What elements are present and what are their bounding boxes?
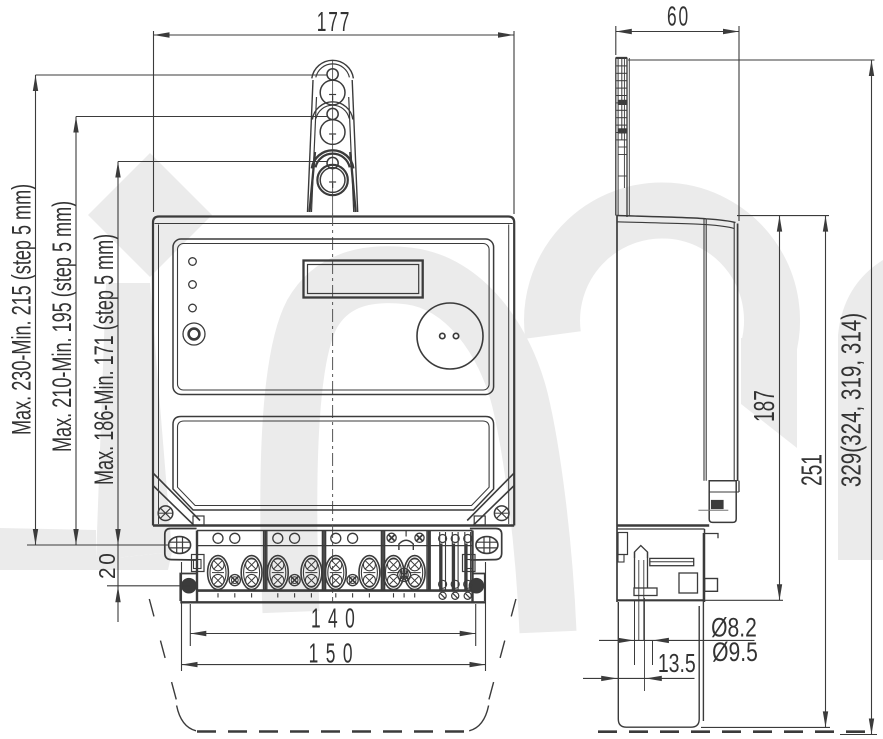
svg-text:20: 20 xyxy=(94,551,120,579)
svg-text:177: 177 xyxy=(317,6,352,37)
svg-text:150: 150 xyxy=(309,637,360,668)
svg-text:Max. 230-Min. 215 (step 5 mm): Max. 230-Min. 215 (step 5 mm) xyxy=(6,184,37,435)
svg-text:251: 251 xyxy=(797,454,829,486)
svg-text:140: 140 xyxy=(311,602,362,633)
svg-text:Max. 186-Min. 171 (step 5 mm): Max. 186-Min. 171 (step 5 mm) xyxy=(88,234,119,485)
svg-text:13.5: 13.5 xyxy=(658,648,696,677)
svg-text:187: 187 xyxy=(749,390,781,422)
svg-text:Ø9.5: Ø9.5 xyxy=(712,638,758,668)
svg-text:329(324, 319, 314): 329(324, 319, 314) xyxy=(837,313,868,487)
svg-text:Max. 210-Min. 195 (step 5 mm): Max. 210-Min. 195 (step 5 mm) xyxy=(46,201,77,452)
svg-text:60: 60 xyxy=(667,0,690,31)
